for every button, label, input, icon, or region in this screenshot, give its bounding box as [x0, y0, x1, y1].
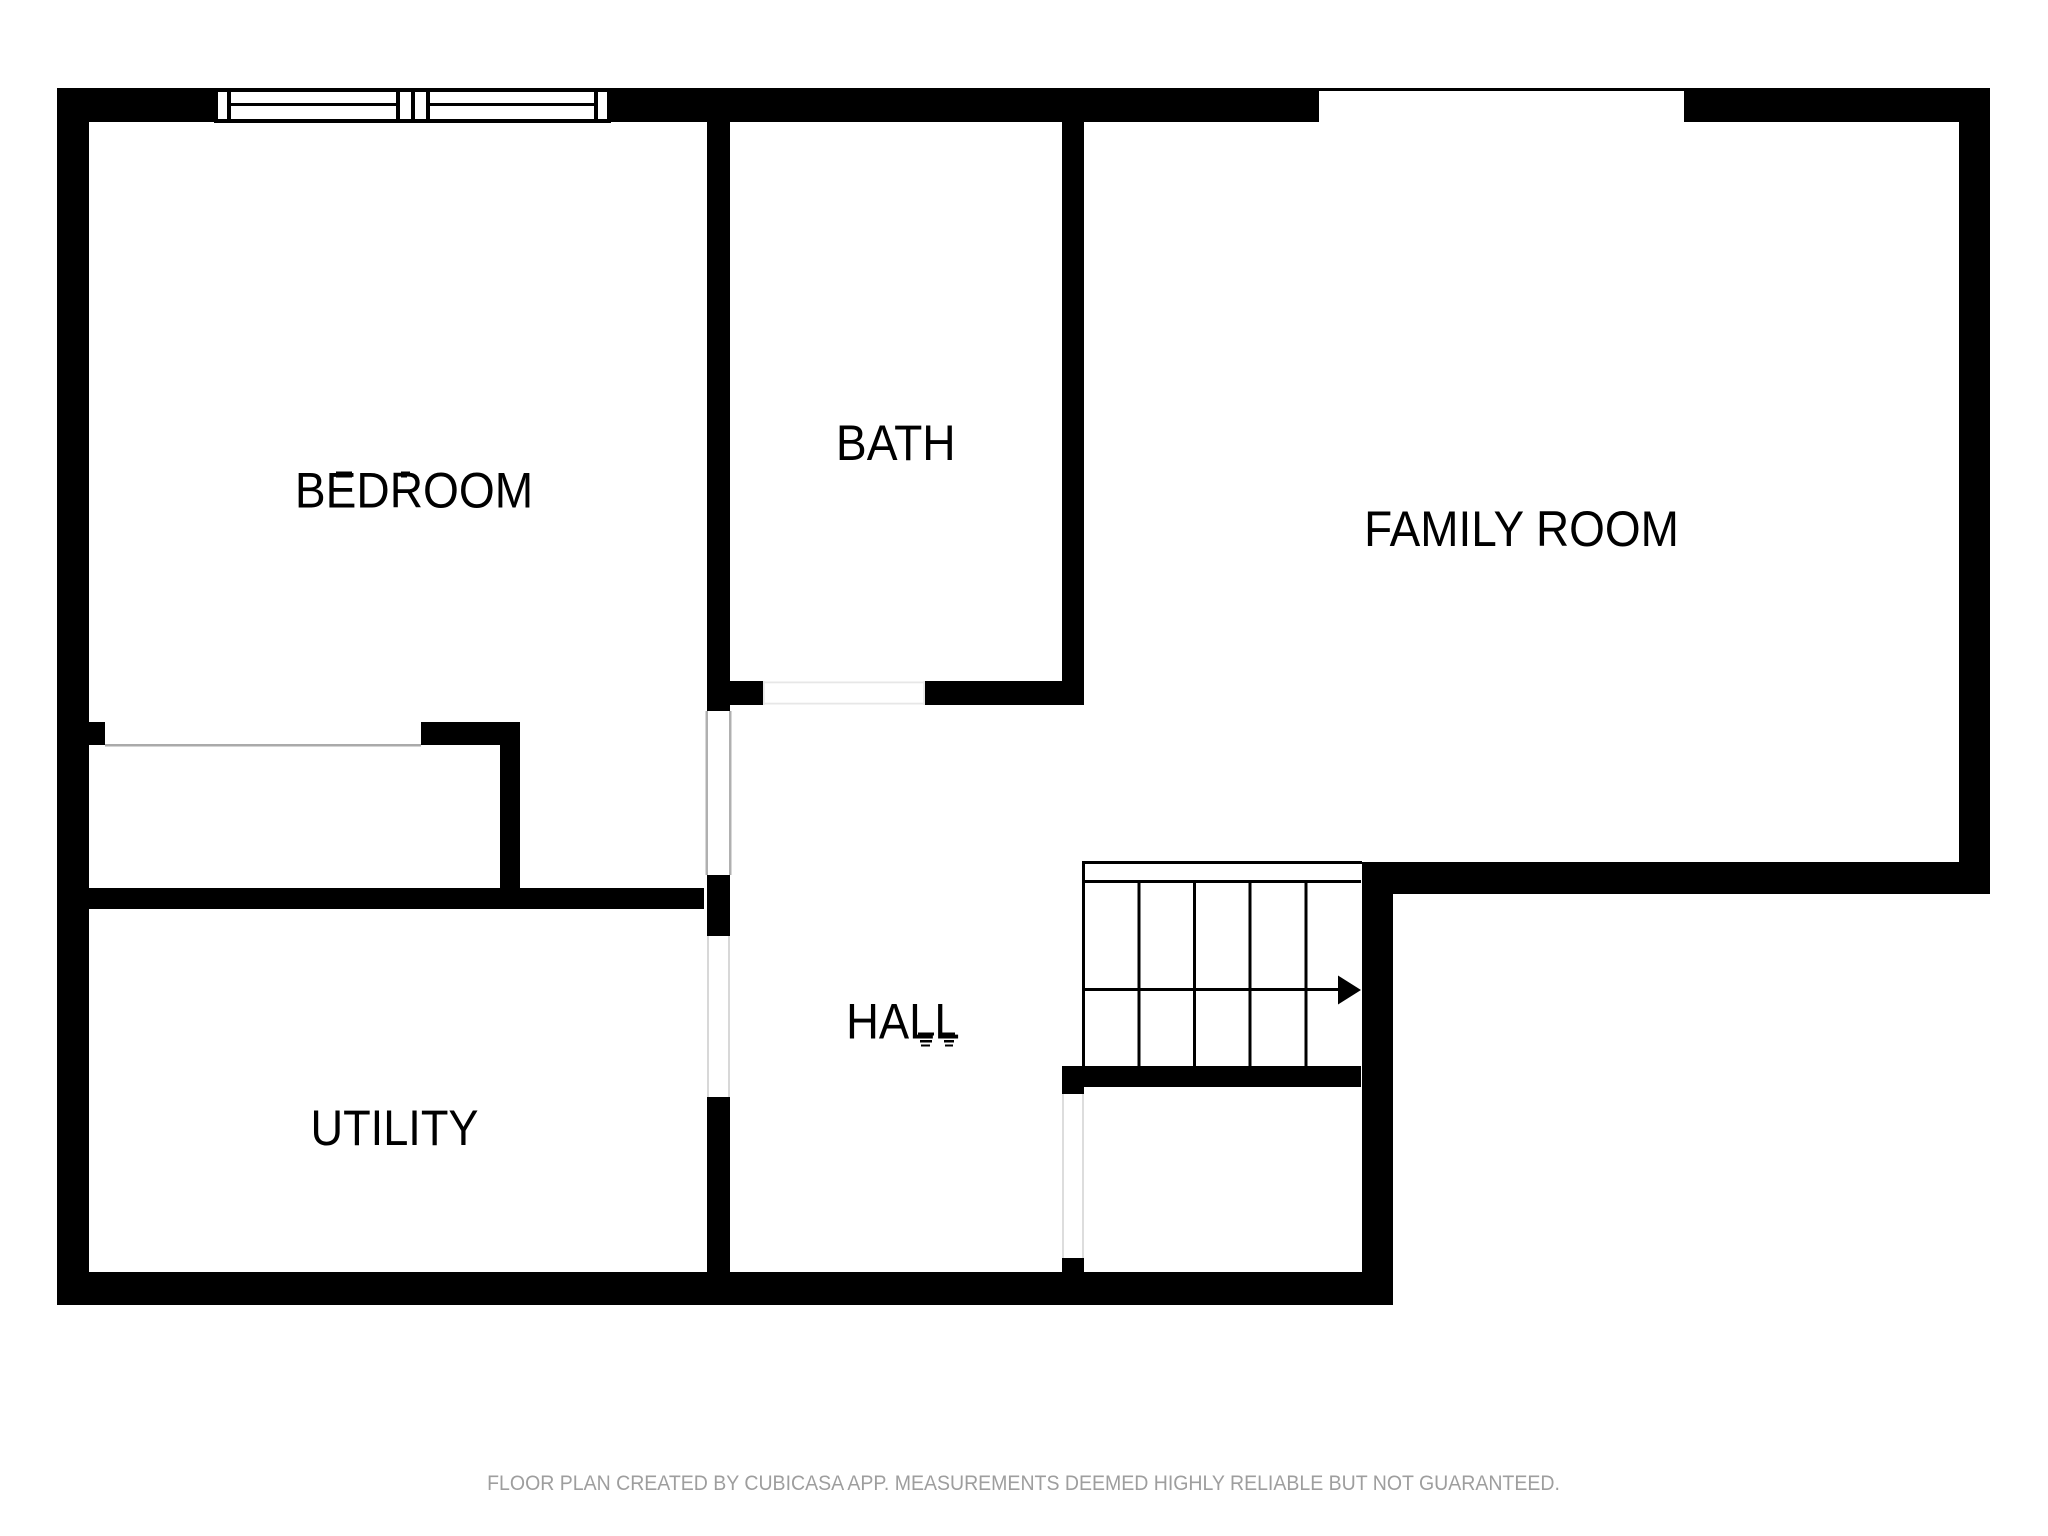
svg-text:HALL: HALL [846, 994, 960, 1050]
svg-text:BATH: BATH [836, 415, 956, 471]
svg-text:BEDROOM: BEDROOM [295, 463, 533, 519]
svg-text:FAMILY ROOM: FAMILY ROOM [1364, 501, 1679, 557]
svg-text:UTILITY: UTILITY [310, 1101, 478, 1157]
svg-text:FLOOR PLAN CREATED BY CUBICASA: FLOOR PLAN CREATED BY CUBICASA APP. MEAS… [487, 1471, 1560, 1495]
